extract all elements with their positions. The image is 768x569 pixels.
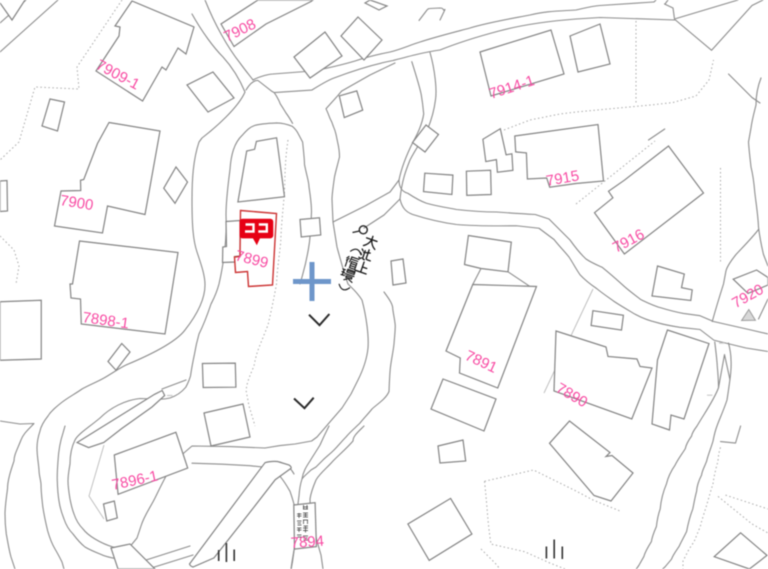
- svg-text:7894: 7894: [290, 533, 324, 552]
